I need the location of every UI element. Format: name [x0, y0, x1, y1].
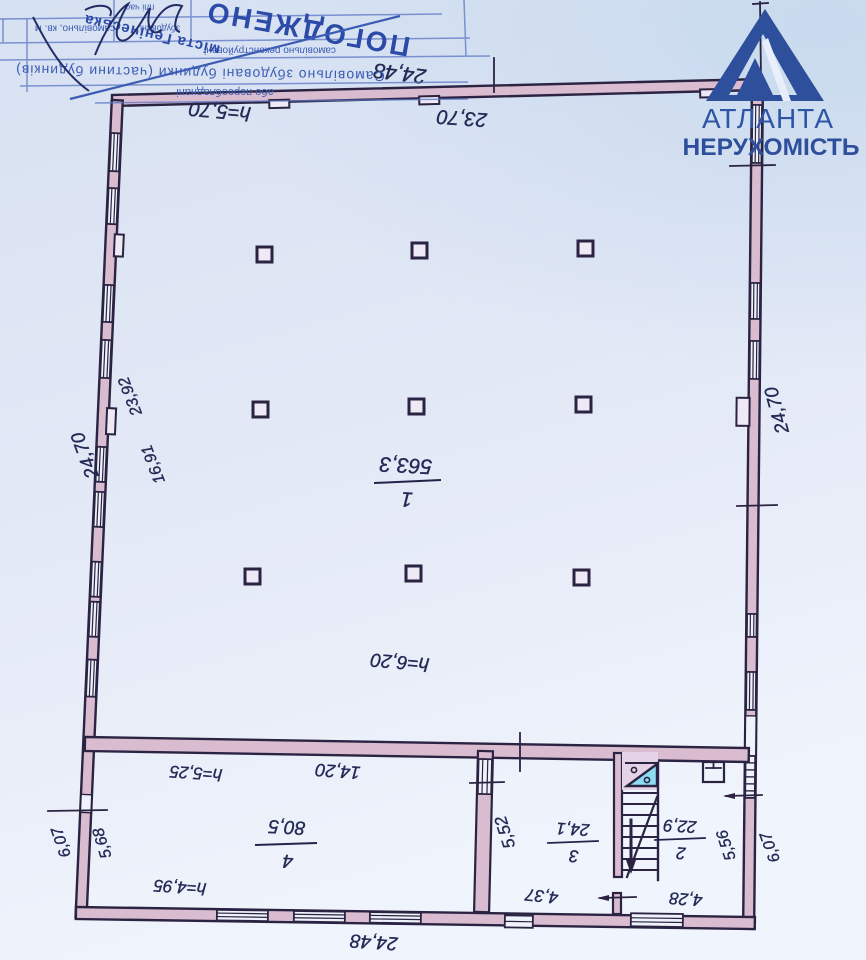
- svg-text:2: 2: [675, 843, 687, 863]
- svg-text:4: 4: [282, 850, 294, 872]
- svg-text:або переобладнані: або переобладнані: [176, 86, 274, 98]
- svg-text:АТЛАНТА: АТЛАНТА: [702, 103, 834, 134]
- svg-text:563,3: 563,3: [379, 452, 433, 478]
- svg-text:3: 3: [568, 846, 579, 865]
- svg-text:НЕРУХОМІСТЬ: НЕРУХОМІСТЬ: [683, 134, 860, 161]
- svg-text:14,20: 14,20: [315, 760, 361, 783]
- svg-text:24,48: 24,48: [349, 929, 399, 953]
- svg-text:22,9: 22,9: [662, 816, 698, 837]
- svg-text:4,28: 4,28: [668, 888, 703, 909]
- svg-text:23,70: 23,70: [436, 105, 488, 131]
- svg-text:80,5: 80,5: [268, 815, 306, 838]
- svg-text:24,1: 24,1: [556, 819, 591, 840]
- svg-text:h=5,25: h=5,25: [169, 762, 223, 785]
- svg-text:h=4,95: h=4,95: [153, 876, 207, 899]
- svg-text:1: 1: [401, 487, 414, 511]
- svg-text:4,37: 4,37: [524, 885, 559, 907]
